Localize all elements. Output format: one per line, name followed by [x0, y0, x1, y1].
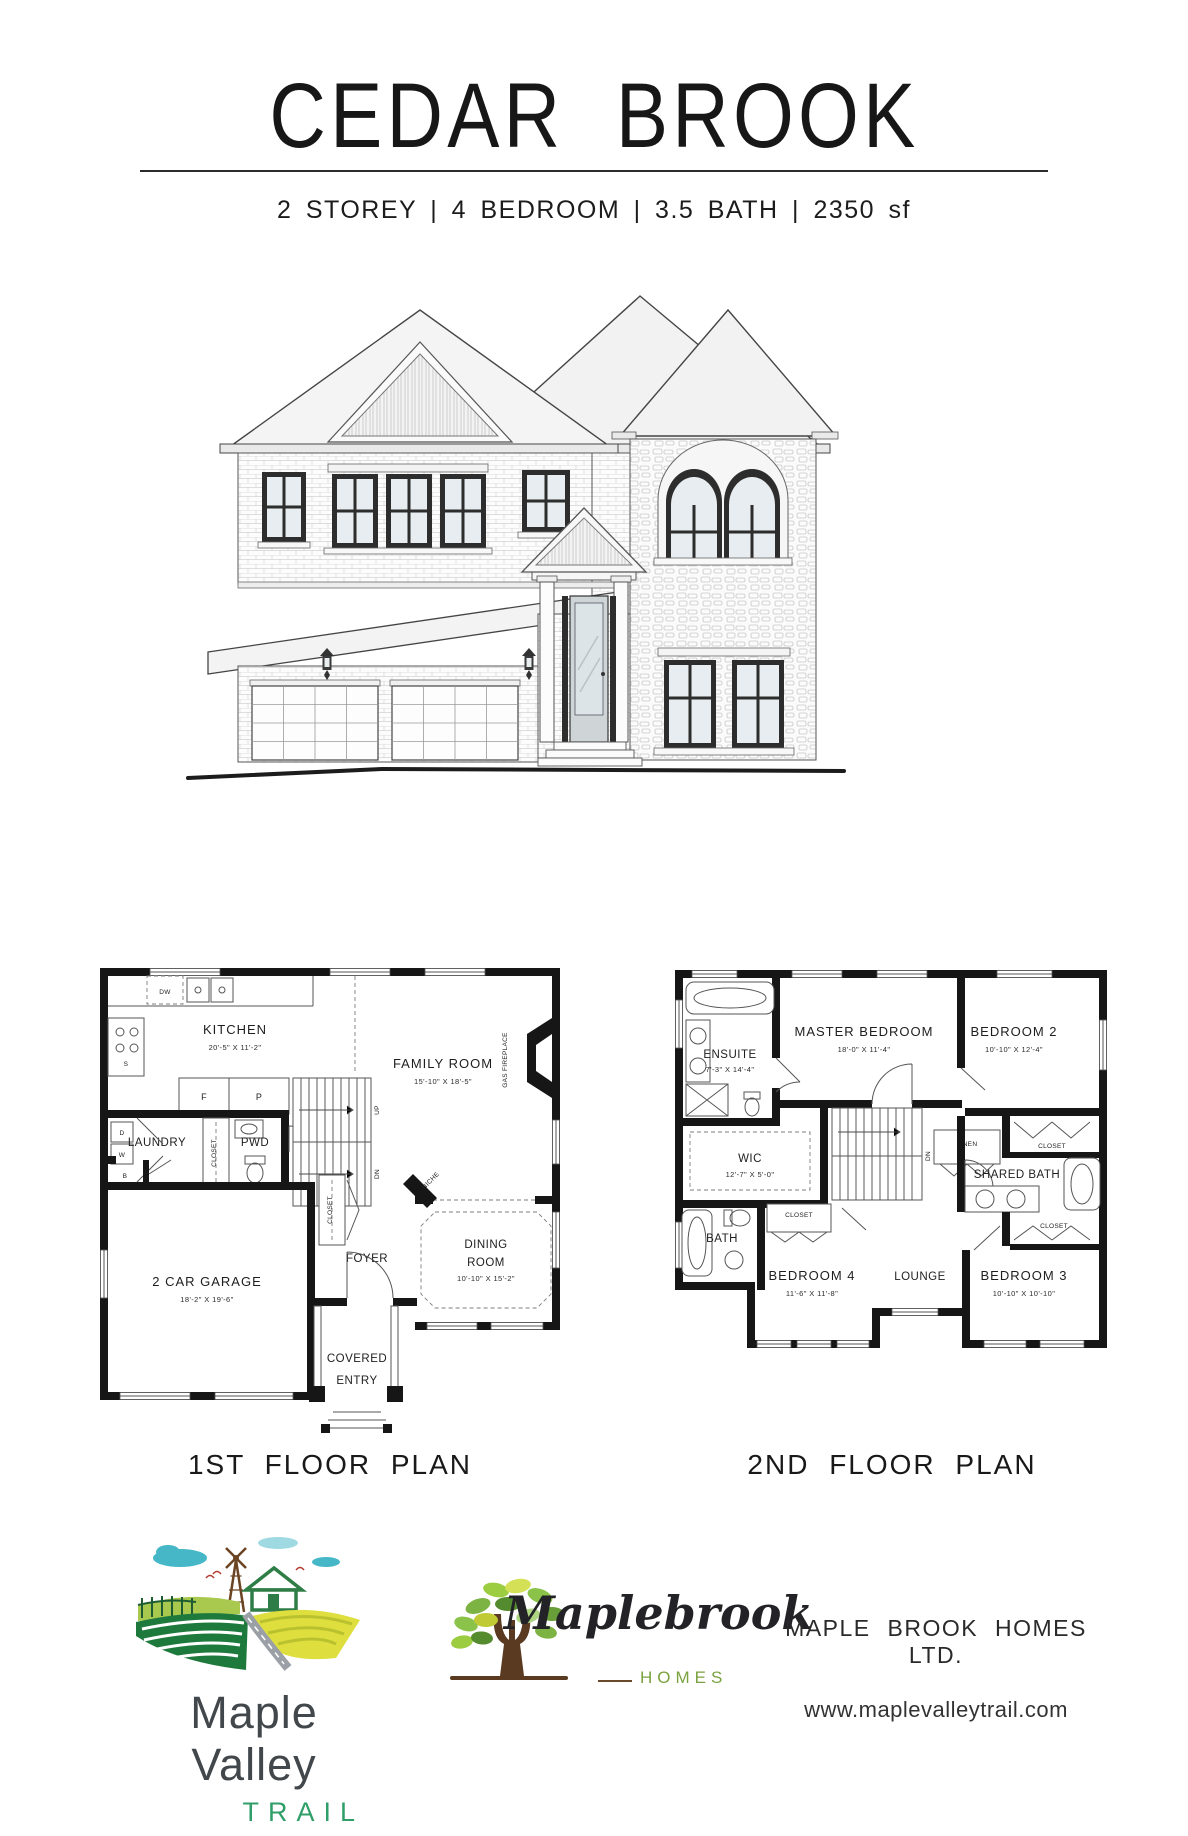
bedroom4-label: BEDROOM 4: [768, 1268, 855, 1283]
first-floor-caption: 1ST FLOOR PLAN: [95, 1449, 565, 1481]
homes-rule: [598, 1680, 632, 1682]
kitchen-dims: 20'-5" X 11'-2": [209, 1043, 262, 1052]
first-floor-plan: GAS FIREPLACE DW S F P KITCHEN 20'-5" X …: [95, 960, 565, 1481]
homes-wordmark: HOMES: [640, 1668, 727, 1688]
ensuite-label: ENSUITE: [703, 1049, 756, 1061]
entry-steps: [538, 742, 642, 766]
garage-door-right: [390, 680, 520, 760]
bedroom4-dims: 11'-6" X 11'-8": [786, 1289, 838, 1298]
kitchen-label: KITCHEN: [203, 1022, 267, 1037]
bath-room: BATH: [682, 1200, 765, 1290]
trail-wordmark: TRAIL: [128, 1797, 380, 1828]
maplebrook-homes-logo: Maplebrook HOMES: [448, 1568, 768, 1718]
closet-b4-label: CLOSET: [785, 1212, 813, 1219]
sink-label: S: [124, 1061, 129, 1068]
master-dims: 18'-0" X 11'-4": [838, 1045, 891, 1054]
stairs-down-label: DN: [374, 1169, 381, 1179]
dining-room: DINING ROOM 10'-10" X 15'-2": [421, 1212, 551, 1308]
stairs-down: DN: [832, 1108, 932, 1200]
bedroom2-label: BEDROOM 2: [970, 1024, 1057, 1039]
covered-entry-label-2: ENTRY: [336, 1375, 377, 1387]
footer-contact: MAPLE BROOK HOMES LTD. www.maplevalleytr…: [760, 1615, 1112, 1723]
website-url: www.maplevalleytrail.com: [760, 1697, 1112, 1723]
garage-dims: 18'-2" X 19'-6": [180, 1295, 233, 1304]
title-rule: [140, 170, 1048, 172]
brochure-page: CEDAR BROOK 2 STOREY | 4 BEDROOM | 3.5 B…: [0, 0, 1188, 1836]
bedroom2-dims: 10'-10" X 12'-4": [985, 1045, 1043, 1054]
front-elevation-drawing: [172, 240, 862, 788]
stairs-dn-label: DN: [925, 1151, 932, 1161]
gas-fireplace: GAS FIREPLACE: [502, 1018, 552, 1098]
bedroom3-label: BEDROOM 3: [980, 1268, 1067, 1283]
washer-label: W: [119, 1152, 126, 1159]
bedroom2-closet: CLOSET: [1002, 1116, 1090, 1152]
master-bedroom: MASTER BEDROOM 18'-0" X 11'-4": [780, 1024, 962, 1108]
lounge-label: LOUNGE: [894, 1271, 946, 1283]
shared-bath-label: SHARED BATH: [974, 1169, 1060, 1181]
foyer-label: FOYER: [346, 1253, 388, 1265]
powder-label: PWD: [241, 1137, 269, 1149]
garage-room: 2 CAR GARAGE 18'-2" X 19'-6": [100, 1182, 315, 1400]
dining-label-2: ROOM: [467, 1257, 505, 1269]
bedroom3-closet: CLOSET: [1002, 1212, 1107, 1250]
company-name: MAPLE BROOK HOMES LTD.: [760, 1615, 1112, 1669]
bedroom2-room: BEDROOM 2 10'-10" X 12'-4": [957, 978, 1107, 1116]
maple-valley-wordmark: Maple Valley: [128, 1687, 380, 1791]
small-window: [258, 472, 310, 548]
ensuite-dims: 7'-3" X 14'-4": [706, 1065, 755, 1074]
hall-closet: CLOSET: [203, 1118, 229, 1188]
covered-entry-label-1: COVERED: [327, 1353, 387, 1365]
foyer-closet-label: CLOSET: [327, 1196, 334, 1224]
garage-door-left: [250, 680, 380, 760]
ground-line: [188, 769, 844, 778]
second-floor-plan: ENSUITE 7'-3" X 14'-4" MASTER BEDROOM 18…: [672, 960, 1112, 1481]
wic-dims: 12'-7" X 5'-0": [726, 1170, 775, 1179]
wic-label: WIC: [738, 1153, 762, 1165]
spec-subtitle: 2 STOREY | 4 BEDROOM | 3.5 BATH | 2350 s…: [0, 196, 1188, 225]
dryer-label: D: [120, 1130, 125, 1137]
hall-closet-label: CLOSET: [211, 1139, 218, 1167]
closet-b2-label: CLOSET: [1038, 1143, 1066, 1150]
fridge-label: F: [201, 1092, 207, 1102]
lounge-area: LOUNGE: [894, 1271, 946, 1283]
niche-label: NICHE: [421, 1171, 442, 1192]
triple-window: [324, 464, 492, 554]
laundry-label: LAUNDRY: [128, 1137, 186, 1149]
gas-fireplace-label: GAS FIREPLACE: [502, 1032, 509, 1088]
foyer-area: CLOSET NICHE FOYER: [313, 1171, 441, 1306]
header: CEDAR BROOK 2 STOREY | 4 BEDROOM | 3.5 B…: [0, 70, 1188, 225]
family-room-label: FAMILY ROOM: [393, 1056, 493, 1071]
family-room-dims: 15'-10" X 18'-5": [414, 1077, 472, 1086]
bedroom3-dims: 10'-10" X 10'-10": [993, 1289, 1056, 1298]
covered-entry: COVERED ENTRY: [309, 1306, 403, 1433]
pantry-label: P: [256, 1092, 262, 1102]
master-label: MASTER BEDROOM: [795, 1024, 934, 1039]
dining-dims: 10'-10" X 15'-2": [457, 1274, 515, 1283]
closet-b3-label: CLOSET: [1040, 1223, 1068, 1230]
bench-closet-label: B: [123, 1173, 128, 1180]
page-title: CEDAR BROOK: [269, 70, 919, 162]
garage-label: 2 CAR GARAGE: [152, 1274, 262, 1289]
bath-label: BATH: [706, 1233, 738, 1245]
dining-label-1: DINING: [464, 1239, 507, 1251]
farm-scene-icon: [128, 1528, 380, 1680]
stairs-up-label: UP: [374, 1105, 381, 1115]
second-floor-caption: 2ND FLOOR PLAN: [672, 1449, 1112, 1481]
bedroom4-closet: CLOSET: [767, 1204, 831, 1242]
roof-structures: [220, 296, 838, 453]
dishwasher-label: DW: [159, 989, 171, 996]
maple-valley-trail-logo: Maple Valley TRAIL: [128, 1528, 380, 1828]
